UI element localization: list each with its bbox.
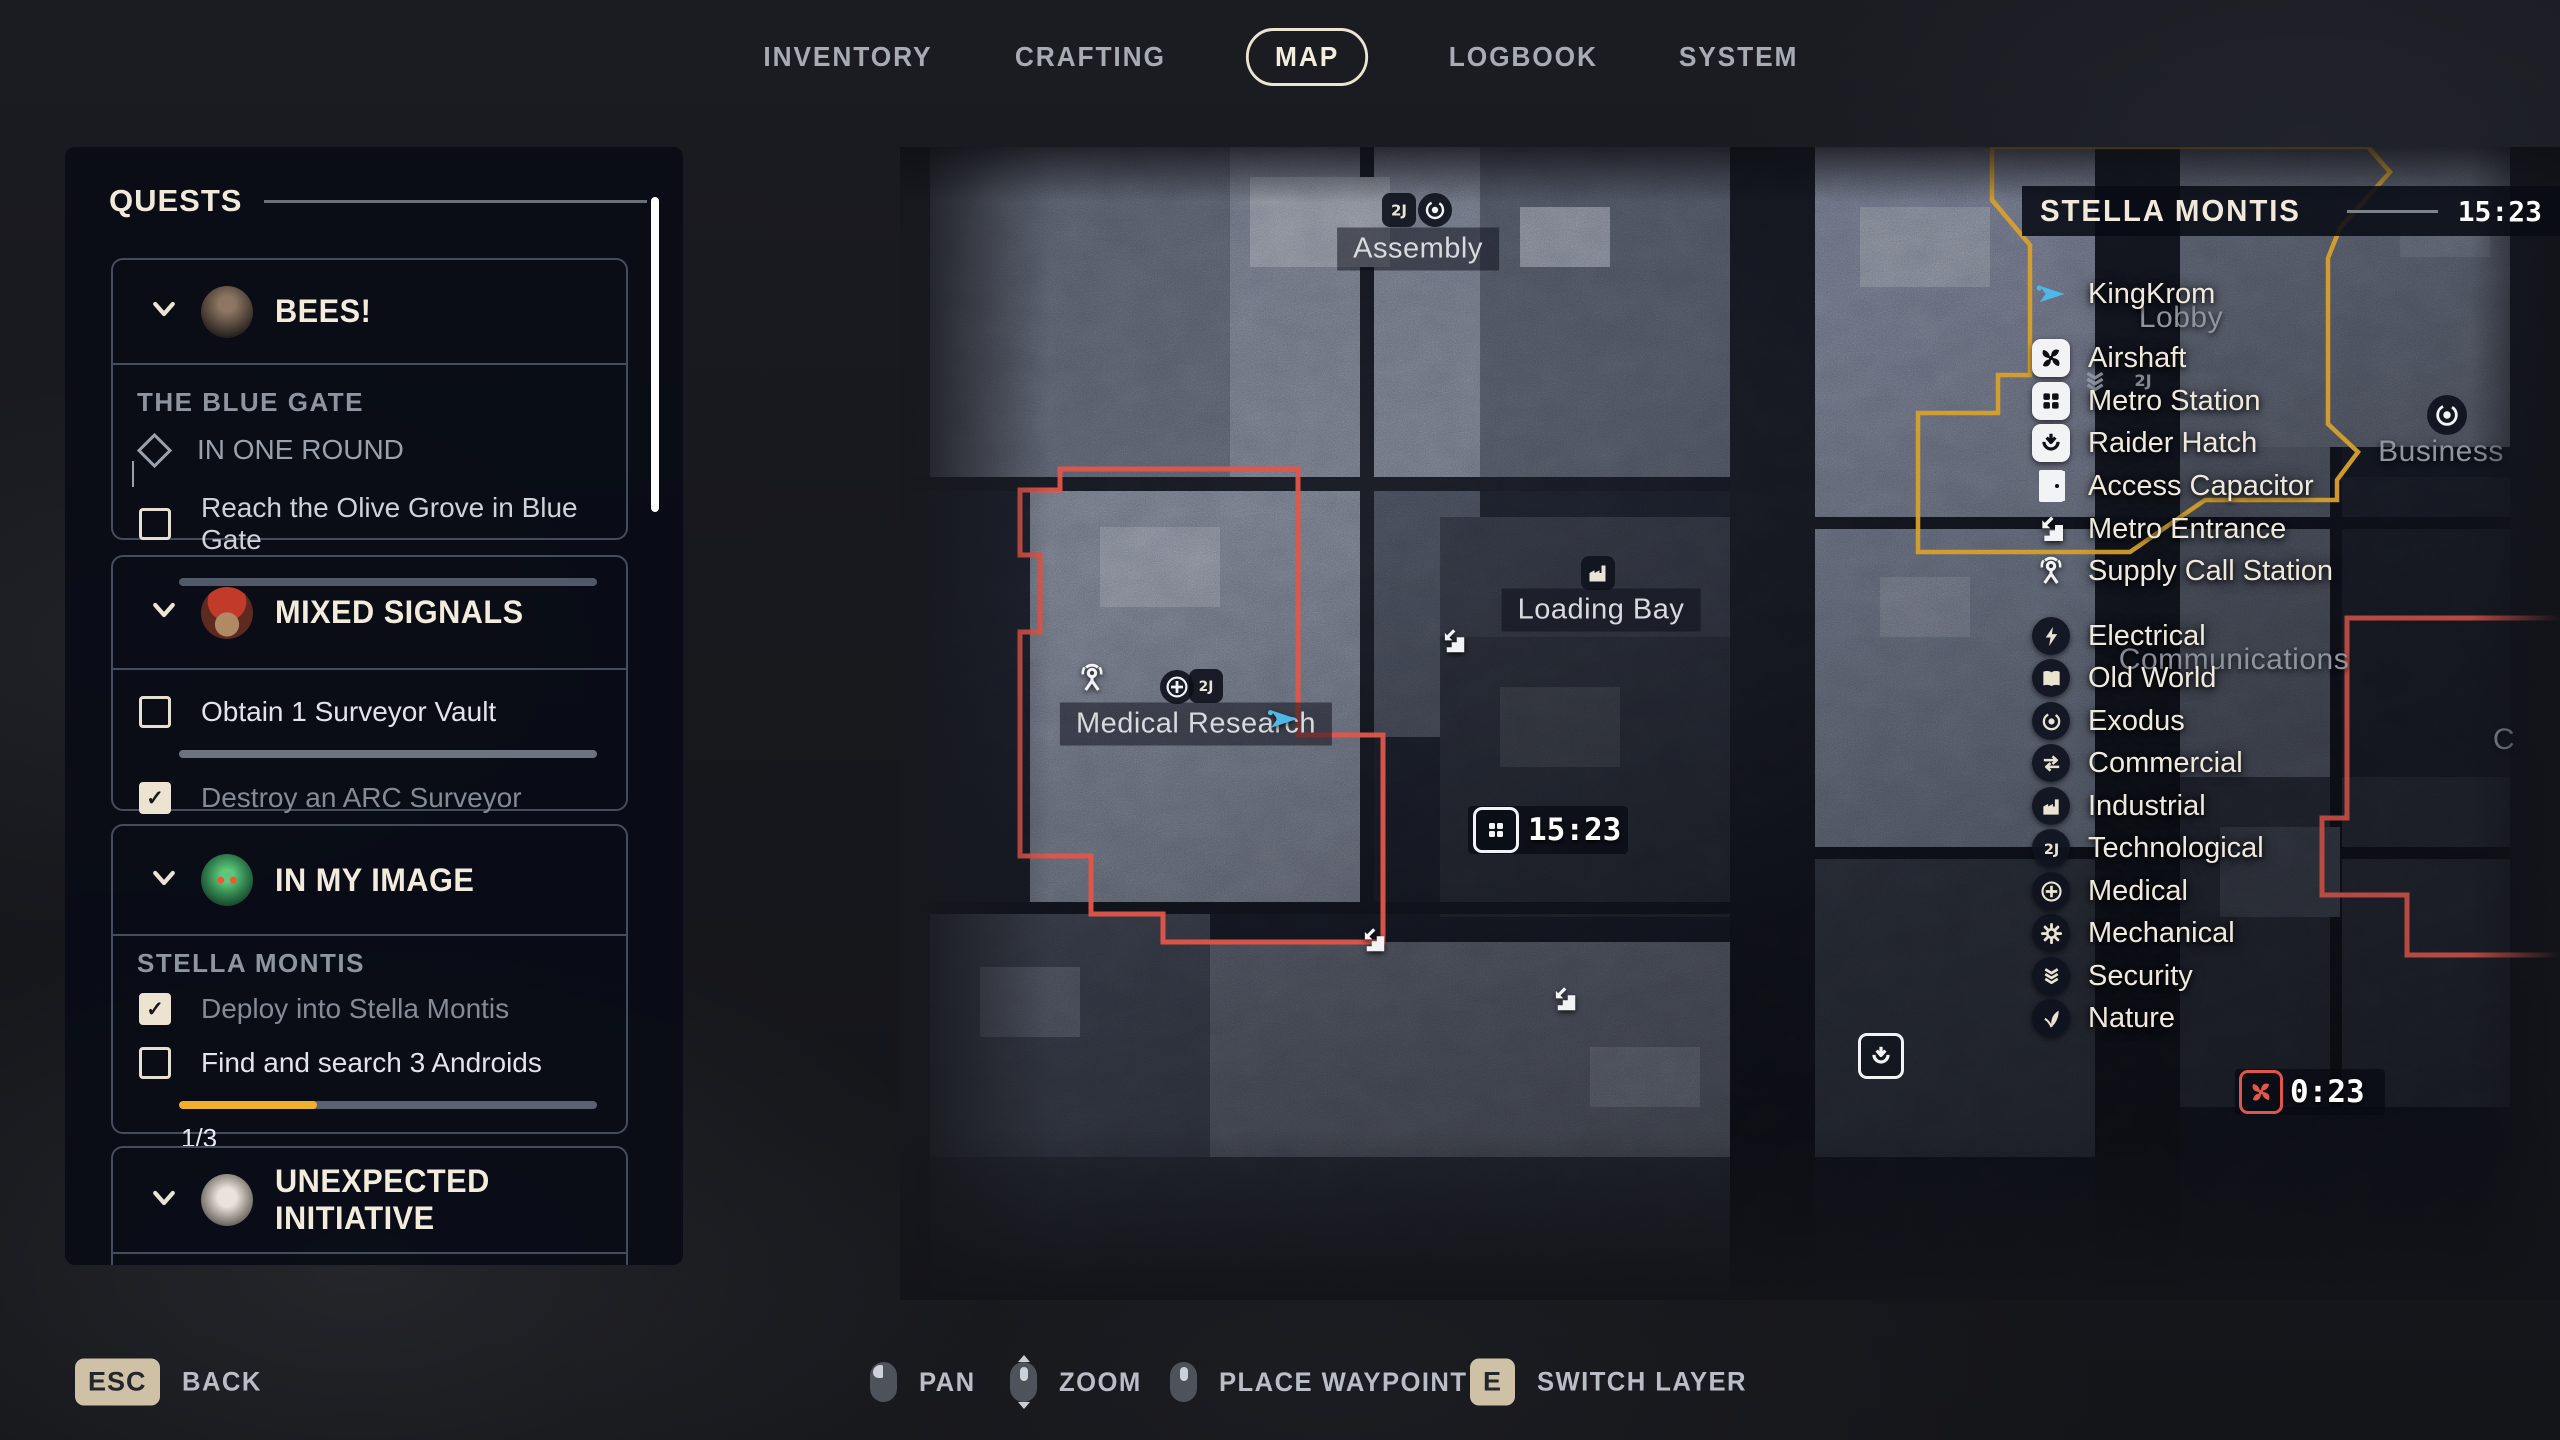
objective-label: Deploy into Stella Montis (201, 993, 509, 1025)
objective-label: Obtain 1 Surveyor Vault (201, 696, 496, 728)
quests-heading-rule (264, 200, 647, 203)
airshaft-icon[interactable] (2239, 1070, 2283, 1114)
legend-item-airshaft[interactable]: Airshaft (2032, 339, 2186, 377)
legend-header: STELLA MONTIS 15:23 (2022, 186, 2560, 236)
quest-title: BEES! (275, 293, 371, 330)
map-fade-bottom (900, 1130, 2560, 1300)
legend-item-medical[interactable]: Medical (2032, 872, 2188, 910)
quest-card-unexpected-initiative[interactable]: UNEXPECTED INITIATIVE (111, 1146, 628, 1265)
mechanical-icon (2032, 914, 2070, 952)
commercial-icon (2032, 744, 2070, 782)
hint-switch-layer[interactable]: E SWITCH LAYER (1470, 1359, 1758, 1406)
hint-back[interactable]: ESC BACK (75, 1359, 266, 1406)
supply-call-station-icon[interactable] (1075, 661, 1109, 695)
quest-giver-avatar (201, 286, 253, 338)
map-screen: Assembly Loading Bay Medical Research Lo… (0, 0, 2560, 1440)
legend-item-kingkrom[interactable]: KingKrom (2032, 275, 2215, 313)
metro-station-icon[interactable] (1473, 807, 1519, 853)
legend-item-metro-station[interactable]: Metro Station (2032, 382, 2260, 420)
mouse-left-icon (870, 1362, 897, 1402)
legend-item-old-world[interactable]: Old World (2032, 659, 2216, 697)
objective-checkbox-checked[interactable]: ✓ (139, 782, 171, 814)
map-name: STELLA MONTIS (2040, 193, 2301, 229)
quest-card-bees[interactable]: BEES! THE BLUE GATE IN ONE ROUND Reach t… (111, 258, 628, 540)
metro-entrance-icon (2032, 510, 2070, 548)
legend-item-commercial[interactable]: Commercial (2032, 744, 2243, 782)
tab-crafting[interactable]: CRAFTING (1014, 41, 1165, 73)
airshaft-timer-value: 0:23 (2290, 1074, 2365, 1110)
chevron-down-icon[interactable] (149, 595, 179, 630)
metro-time-value: 15:23 (1528, 812, 1621, 848)
objective-progressbar (179, 750, 597, 758)
metro-entrance-icon[interactable] (1358, 925, 1388, 955)
chevron-down-icon[interactable] (149, 863, 179, 898)
tab-inventory[interactable]: INVENTORY (763, 41, 932, 73)
airshaft-icon (2032, 339, 2070, 377)
milestone-diamond-icon (137, 432, 172, 467)
chevron-down-icon[interactable] (149, 294, 179, 329)
access-capacitor-icon (2032, 467, 2070, 505)
tab-logbook[interactable]: LOGBOOK (1449, 41, 1598, 73)
mouse-middle-icon (1170, 1362, 1197, 1402)
top-navigation: INVENTORY CRAFTING MAP LOGBOOK SYSTEM (0, 28, 2560, 86)
map-clock: 15:23 (2458, 195, 2542, 228)
old-world-icon (2032, 659, 2070, 697)
objective-connector (132, 461, 134, 487)
industrial-icon[interactable] (1581, 556, 1615, 590)
player-marker-icon[interactable] (1265, 701, 1301, 737)
tab-map[interactable]: MAP (1246, 28, 1368, 86)
area-label-assembly: Assembly (1337, 228, 1499, 271)
industrial-icon (2032, 787, 2070, 825)
quest-giver-avatar (201, 854, 253, 906)
legend-item-supply-call-station[interactable]: Supply Call Station (2032, 552, 2333, 590)
progress-fill (179, 1101, 317, 1109)
quest-section-label: THE BLUE GATE (137, 387, 598, 418)
map-fade-left (900, 147, 1050, 1300)
exodus-icon (2032, 702, 2070, 740)
technological-icon[interactable] (1189, 669, 1223, 703)
objective-checkbox[interactable] (139, 696, 171, 728)
legend-item-access-capacitor[interactable]: Access Capacitor (2032, 467, 2314, 505)
hint-zoom[interactable]: ZOOM (1010, 1362, 1146, 1402)
card-divider (113, 1252, 626, 1254)
quest-scrollbar[interactable] (651, 197, 659, 512)
legend-item-nature[interactable]: Nature (2032, 999, 2175, 1037)
legend-item-industrial[interactable]: Industrial (2032, 787, 2206, 825)
quest-giver-avatar (201, 587, 253, 639)
legend-item-security[interactable]: Security (2032, 957, 2193, 995)
hint-place-waypoint[interactable]: PLACE WAYPOINT (1170, 1362, 1481, 1402)
raider-hatch-icon (2032, 424, 2070, 462)
quest-title: IN MY IMAGE (275, 862, 474, 899)
milestone-label: IN ONE ROUND (197, 434, 404, 466)
legend-item-metro-entrance[interactable]: Metro Entrance (2032, 510, 2286, 548)
metro-entrance-icon[interactable] (1438, 626, 1468, 656)
map-legend: STELLA MONTIS 15:23 KingKrom Airshaft Me… (2022, 147, 2560, 1067)
metro-entrance-icon[interactable] (1549, 984, 1579, 1014)
hint-bar: ESC BACK PAN ZOOM PLACE WAYPOINT E SWITC… (0, 1358, 2560, 1412)
esc-key-icon: ESC (75, 1359, 160, 1406)
quest-title: MIXED SIGNALS (275, 594, 524, 631)
objective-checkbox-checked[interactable]: ✓ (139, 993, 171, 1025)
quest-card-mixed-signals[interactable]: MIXED SIGNALS Obtain 1 Surveyor Vault ✓ … (111, 555, 628, 811)
technological-icon (2032, 829, 2070, 867)
security-icon (2032, 957, 2070, 995)
player-arrow-icon (2032, 275, 2070, 313)
objective-checkbox[interactable] (139, 508, 171, 540)
legend-item-mechanical[interactable]: Mechanical (2032, 914, 2235, 952)
nature-icon (2032, 999, 2070, 1037)
hint-pan[interactable]: PAN (870, 1362, 979, 1402)
electrical-icon (2032, 617, 2070, 655)
area-label-loading-bay: Loading Bay (1502, 589, 1701, 632)
objective-label: Find and search 3 Androids (201, 1047, 542, 1079)
legend-item-technological[interactable]: Technological (2032, 829, 2264, 867)
e-key-icon: E (1470, 1359, 1515, 1406)
legend-item-raider-hatch[interactable]: Raider Hatch (2032, 424, 2257, 462)
objective-progressbar (179, 1101, 597, 1109)
legend-item-electrical[interactable]: Electrical (2032, 617, 2206, 655)
quest-card-in-my-image[interactable]: IN MY IMAGE STELLA MONTIS ✓ Deploy into … (111, 824, 628, 1134)
raider-hatch-icon[interactable] (1858, 1033, 1904, 1079)
quest-giver-avatar (201, 1174, 253, 1226)
objective-label: Reach the Olive Grove in Blue Gate (201, 492, 598, 556)
quest-section-label: STELLA MONTIS (137, 948, 598, 979)
legend-item-exodus[interactable]: Exodus (2032, 702, 2185, 740)
mouse-wheel-icon (1010, 1362, 1037, 1402)
chevron-down-icon[interactable] (149, 1183, 179, 1218)
quest-title: UNEXPECTED INITIATIVE (275, 1163, 612, 1237)
medical-icon (2032, 872, 2070, 910)
legend-header-rule (2347, 210, 2438, 213)
metro-station-icon (2032, 382, 2070, 420)
tab-system[interactable]: SYSTEM (1679, 41, 1799, 73)
quests-heading: QUESTS (109, 183, 242, 219)
objective-label: Destroy an ARC Surveyor (201, 782, 522, 814)
quest-panel: QUESTS BEES! THE BLUE GATE IN ONE ROUND (65, 147, 683, 1265)
objective-checkbox[interactable] (139, 1047, 171, 1079)
supply-call-station-icon (2032, 552, 2070, 590)
